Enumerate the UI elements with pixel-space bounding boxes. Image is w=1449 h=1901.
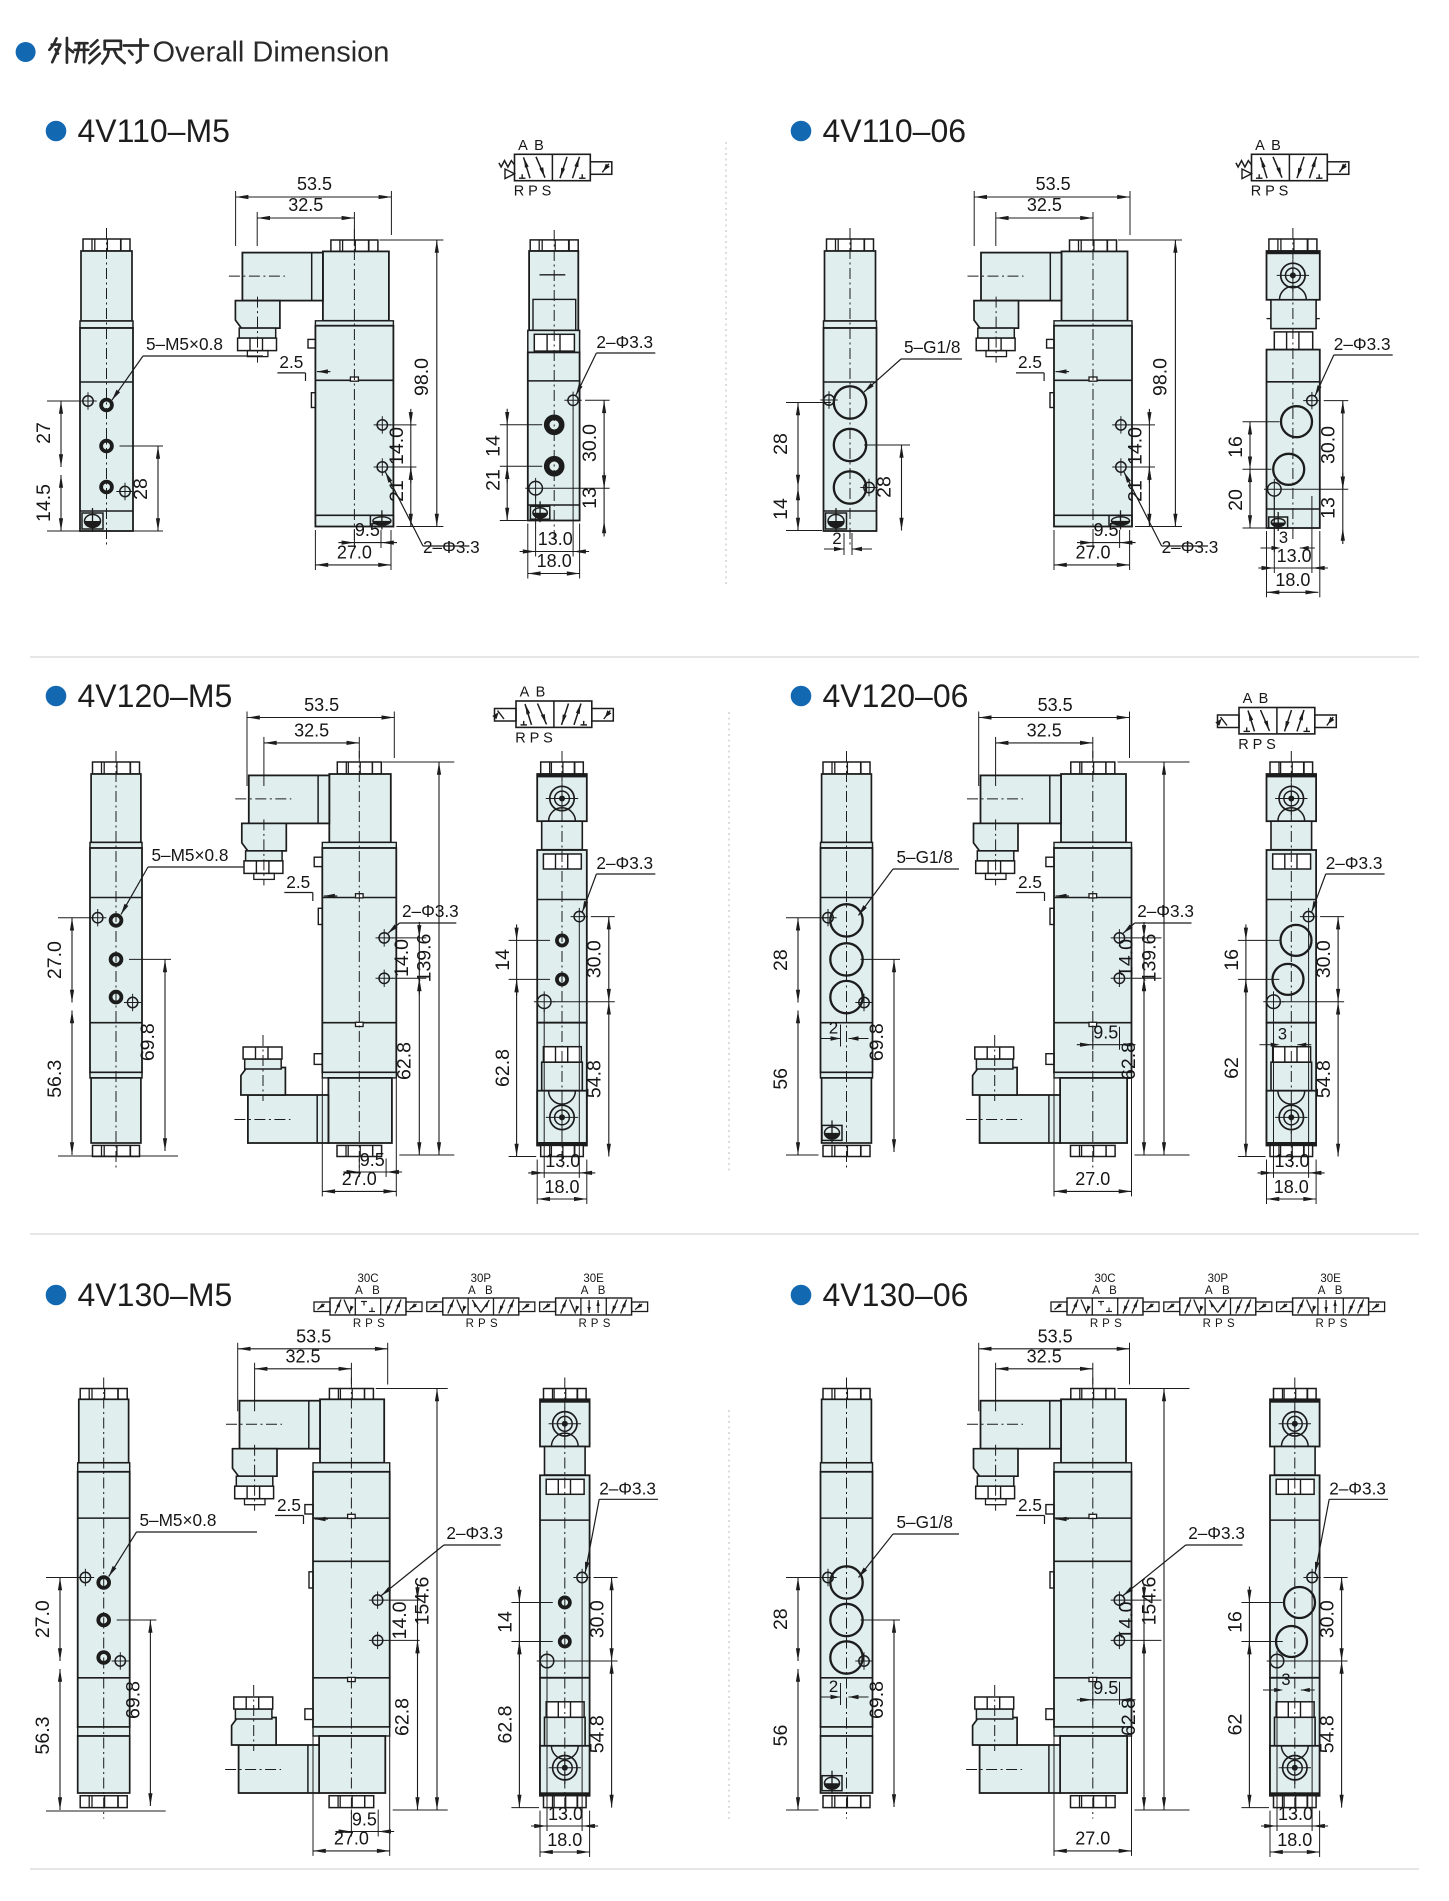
svg-text:62.8: 62.8 — [1118, 1042, 1140, 1080]
svg-text:B: B — [485, 1285, 493, 1297]
svg-text:S: S — [1266, 737, 1276, 753]
svg-text:14: 14 — [495, 1611, 517, 1633]
svg-text:S: S — [490, 1318, 498, 1330]
svg-text:16: 16 — [1225, 436, 1247, 458]
svg-text:4V110–M5: 4V110–M5 — [78, 113, 230, 149]
svg-text:30C: 30C — [1094, 1273, 1115, 1285]
svg-text:B: B — [1259, 691, 1269, 707]
svg-text:18.0: 18.0 — [537, 551, 572, 571]
svg-text:2.5: 2.5 — [1018, 352, 1042, 372]
svg-text:A: A — [1092, 1285, 1100, 1297]
svg-text:A: A — [581, 1285, 589, 1297]
svg-text:14.0: 14.0 — [391, 939, 413, 977]
svg-text:2–Φ3.3: 2–Φ3.3 — [599, 1478, 656, 1498]
svg-text:2–Φ3.3: 2–Φ3.3 — [423, 537, 480, 557]
svg-text:B: B — [598, 1285, 606, 1297]
svg-text:32.5: 32.5 — [285, 1346, 320, 1366]
svg-text:R: R — [353, 1318, 361, 1330]
svg-text:30E: 30E — [1320, 1273, 1341, 1285]
svg-text:S: S — [1114, 1318, 1122, 1330]
svg-text:5–G1/8: 5–G1/8 — [897, 847, 953, 867]
svg-text:62: 62 — [1225, 1714, 1247, 1736]
svg-text:27: 27 — [33, 422, 55, 444]
svg-text:S: S — [377, 1318, 385, 1330]
svg-text:62.8: 62.8 — [492, 1049, 514, 1087]
svg-text:20: 20 — [1225, 489, 1247, 511]
svg-text:14.0: 14.0 — [1125, 427, 1147, 465]
svg-text:P: P — [1102, 1318, 1110, 1330]
svg-text:2–Φ3.3: 2–Φ3.3 — [1188, 1523, 1245, 1543]
svg-text:54.8: 54.8 — [1317, 1715, 1339, 1753]
svg-text:2.5: 2.5 — [286, 872, 310, 892]
svg-text:30.0: 30.0 — [1318, 426, 1340, 464]
svg-text:53.5: 53.5 — [1038, 695, 1073, 715]
svg-text:54.8: 54.8 — [584, 1060, 606, 1098]
svg-text:32.5: 32.5 — [294, 720, 329, 740]
svg-text:53.5: 53.5 — [304, 695, 339, 715]
svg-text:28: 28 — [130, 478, 152, 500]
svg-text:2.5: 2.5 — [1018, 872, 1042, 892]
svg-text:13.0: 13.0 — [538, 529, 573, 549]
svg-text:27.0: 27.0 — [342, 1169, 377, 1189]
svg-text:P: P — [1328, 1318, 1336, 1330]
svg-text:14.5: 14.5 — [33, 484, 55, 522]
svg-text:2.5: 2.5 — [277, 1495, 301, 1515]
svg-text:9.5: 9.5 — [1093, 1678, 1118, 1698]
svg-text:53.5: 53.5 — [296, 1326, 331, 1346]
svg-text:14: 14 — [482, 435, 504, 457]
svg-text:28: 28 — [770, 433, 792, 455]
svg-text:30.0: 30.0 — [584, 940, 606, 978]
svg-text:2–Φ3.3: 2–Φ3.3 — [596, 332, 653, 352]
svg-text:14.0: 14.0 — [1116, 939, 1138, 977]
svg-text:2–Φ3.3: 2–Φ3.3 — [1334, 334, 1391, 354]
svg-text:27.0: 27.0 — [1075, 1828, 1110, 1848]
svg-text:P: P — [591, 1318, 599, 1330]
svg-text:9.5: 9.5 — [1093, 1023, 1118, 1043]
svg-text:B: B — [536, 685, 546, 701]
svg-text:13.0: 13.0 — [548, 1804, 583, 1824]
svg-text:53.5: 53.5 — [297, 174, 332, 194]
svg-text:62.8: 62.8 — [392, 1698, 414, 1736]
svg-text:P: P — [528, 184, 538, 200]
svg-text:B: B — [1335, 1285, 1343, 1297]
svg-text:98.0: 98.0 — [1150, 358, 1172, 396]
svg-text:R: R — [1315, 1318, 1323, 1330]
svg-text:S: S — [1340, 1318, 1348, 1330]
svg-text:4V120–M5: 4V120–M5 — [78, 678, 233, 714]
svg-text:3: 3 — [1278, 1026, 1287, 1044]
svg-text:69.8: 69.8 — [866, 1023, 888, 1061]
svg-text:32.5: 32.5 — [1027, 195, 1062, 215]
svg-text:56: 56 — [770, 1068, 792, 1090]
svg-text:R: R — [515, 730, 525, 746]
svg-text:13: 13 — [579, 487, 601, 509]
svg-text:154.6: 154.6 — [1139, 1577, 1161, 1626]
svg-text:27.0: 27.0 — [334, 1828, 369, 1848]
svg-text:4V130–M5: 4V130–M5 — [78, 1277, 233, 1313]
svg-text:B: B — [372, 1285, 380, 1297]
svg-text:A: A — [468, 1285, 476, 1297]
svg-text:P: P — [365, 1318, 373, 1330]
svg-text:S: S — [542, 184, 552, 200]
svg-text:21: 21 — [386, 480, 408, 502]
svg-text:5–M5×0.8: 5–M5×0.8 — [152, 845, 229, 865]
svg-text:30P: 30P — [471, 1273, 492, 1285]
svg-text:16: 16 — [1221, 949, 1243, 971]
svg-text:27.0: 27.0 — [44, 941, 66, 979]
svg-text:18.0: 18.0 — [544, 1177, 579, 1197]
svg-text:5–M5×0.8: 5–M5×0.8 — [140, 1510, 217, 1530]
svg-text:62.8: 62.8 — [1118, 1698, 1140, 1736]
svg-text:53.5: 53.5 — [1036, 174, 1071, 194]
svg-text:4V130–06: 4V130–06 — [823, 1277, 969, 1313]
svg-text:4V120–06: 4V120–06 — [823, 678, 969, 714]
svg-text:2–Φ3.3: 2–Φ3.3 — [1329, 1478, 1386, 1498]
svg-text:B: B — [1109, 1285, 1117, 1297]
svg-text:14: 14 — [492, 949, 514, 971]
svg-text:18.0: 18.0 — [1274, 1177, 1309, 1197]
svg-text:2–Φ3.3: 2–Φ3.3 — [446, 1523, 503, 1543]
svg-text:98.0: 98.0 — [411, 358, 433, 396]
svg-text:53.5: 53.5 — [1038, 1326, 1073, 1346]
svg-text:3: 3 — [1281, 1671, 1290, 1689]
svg-text:2: 2 — [829, 1019, 838, 1038]
svg-text:62: 62 — [1221, 1057, 1243, 1079]
svg-text:62.8: 62.8 — [394, 1042, 416, 1080]
svg-text:A: A — [355, 1285, 363, 1297]
svg-text:13.0: 13.0 — [1277, 546, 1312, 566]
svg-text:32.5: 32.5 — [288, 195, 323, 215]
svg-text:S: S — [543, 730, 553, 746]
svg-text:30.0: 30.0 — [1317, 1600, 1339, 1638]
svg-text:2: 2 — [829, 1677, 838, 1696]
svg-text:28: 28 — [874, 476, 896, 498]
svg-text:A: A — [1318, 1285, 1326, 1297]
svg-text:27.0: 27.0 — [1075, 1169, 1110, 1189]
svg-text:A: A — [518, 138, 528, 154]
svg-text:56.3: 56.3 — [44, 1060, 66, 1098]
svg-text:R: R — [578, 1318, 586, 1330]
svg-text:3: 3 — [1279, 529, 1288, 547]
svg-text:30.0: 30.0 — [579, 424, 601, 462]
svg-text:56.3: 56.3 — [32, 1717, 54, 1755]
svg-text:56: 56 — [770, 1725, 792, 1747]
svg-text:B: B — [1222, 1285, 1230, 1297]
svg-text:14.0: 14.0 — [389, 1601, 411, 1639]
svg-text:54.8: 54.8 — [1313, 1060, 1335, 1098]
svg-text:28: 28 — [770, 949, 792, 971]
svg-text:2–Φ3.3: 2–Φ3.3 — [1137, 901, 1194, 921]
svg-text:P: P — [1253, 737, 1263, 753]
svg-text:R: R — [466, 1318, 474, 1330]
svg-text:154.6: 154.6 — [412, 1577, 434, 1626]
svg-text:4V110–06: 4V110–06 — [823, 113, 967, 149]
svg-text:9.5: 9.5 — [352, 1810, 377, 1830]
svg-text:14.0: 14.0 — [386, 427, 408, 465]
svg-text:2–Φ3.3: 2–Φ3.3 — [596, 853, 653, 873]
svg-text:30P: 30P — [1208, 1273, 1229, 1285]
svg-text:A: A — [1243, 691, 1253, 707]
svg-text:R: R — [1238, 737, 1248, 753]
svg-text:S: S — [603, 1318, 611, 1330]
svg-text:18.0: 18.0 — [1275, 570, 1310, 590]
svg-text:62.8: 62.8 — [495, 1706, 517, 1744]
svg-text:18.0: 18.0 — [547, 1830, 582, 1850]
svg-text:21: 21 — [1125, 480, 1147, 502]
svg-text:5–G1/8: 5–G1/8 — [897, 1512, 953, 1532]
svg-text:13.0: 13.0 — [1274, 1151, 1309, 1171]
svg-text:5–M5×0.8: 5–M5×0.8 — [146, 334, 223, 354]
svg-text:69.8: 69.8 — [122, 1681, 144, 1719]
svg-text:139.6: 139.6 — [414, 934, 436, 983]
svg-text:21: 21 — [482, 469, 504, 491]
svg-text:13.0: 13.0 — [545, 1151, 580, 1171]
svg-text:14: 14 — [770, 498, 792, 520]
svg-text:13.0: 13.0 — [1278, 1804, 1313, 1824]
svg-text:69.8: 69.8 — [866, 1681, 888, 1719]
svg-text:30.0: 30.0 — [1313, 940, 1335, 978]
svg-text:A: A — [1255, 138, 1265, 154]
svg-text:Overall Dimension: Overall Dimension — [153, 37, 390, 69]
svg-text:30E: 30E — [583, 1273, 604, 1285]
svg-text:32.5: 32.5 — [1027, 720, 1062, 740]
svg-text:R: R — [1203, 1318, 1211, 1330]
svg-text:P: P — [1265, 184, 1275, 200]
svg-text:P: P — [1215, 1318, 1223, 1330]
svg-text:9.5: 9.5 — [355, 520, 380, 540]
svg-text:A: A — [1205, 1285, 1213, 1297]
svg-text:R: R — [1251, 184, 1261, 200]
svg-text:B: B — [1271, 138, 1281, 154]
svg-text:32.5: 32.5 — [1027, 1346, 1062, 1366]
svg-text:9.5: 9.5 — [360, 1150, 385, 1170]
svg-text:5–G1/8: 5–G1/8 — [904, 337, 960, 357]
svg-text:18.0: 18.0 — [1277, 1830, 1312, 1850]
svg-text:54.8: 54.8 — [587, 1715, 609, 1753]
svg-text:B: B — [534, 138, 544, 154]
svg-text:2.5: 2.5 — [279, 352, 303, 372]
svg-text:S: S — [1279, 184, 1289, 200]
svg-text:27.0: 27.0 — [32, 1600, 54, 1638]
svg-text:A: A — [520, 685, 530, 701]
svg-text:2: 2 — [832, 529, 841, 548]
svg-text:9.5: 9.5 — [1093, 520, 1118, 540]
svg-text:2–Φ3.3: 2–Φ3.3 — [402, 901, 459, 921]
svg-text:2–Φ3.3: 2–Φ3.3 — [1326, 853, 1383, 873]
svg-text:30C: 30C — [357, 1273, 378, 1285]
svg-text:R: R — [1090, 1318, 1098, 1330]
svg-text:27.0: 27.0 — [337, 543, 372, 563]
svg-text:139.6: 139.6 — [1139, 934, 1161, 983]
svg-text:16: 16 — [1225, 1611, 1247, 1633]
svg-text:14.0: 14.0 — [1116, 1601, 1138, 1639]
svg-text:2.5: 2.5 — [1018, 1495, 1042, 1515]
svg-text:28: 28 — [770, 1608, 792, 1630]
svg-text:P: P — [478, 1318, 486, 1330]
svg-text:13: 13 — [1318, 497, 1340, 519]
svg-text:27.0: 27.0 — [1075, 543, 1110, 563]
svg-text:30.0: 30.0 — [587, 1600, 609, 1638]
svg-text:69.8: 69.8 — [137, 1023, 159, 1061]
svg-text:2–Φ3.3: 2–Φ3.3 — [1162, 537, 1219, 557]
svg-text:R: R — [514, 184, 524, 200]
svg-text:P: P — [530, 730, 540, 746]
svg-text:S: S — [1227, 1318, 1235, 1330]
